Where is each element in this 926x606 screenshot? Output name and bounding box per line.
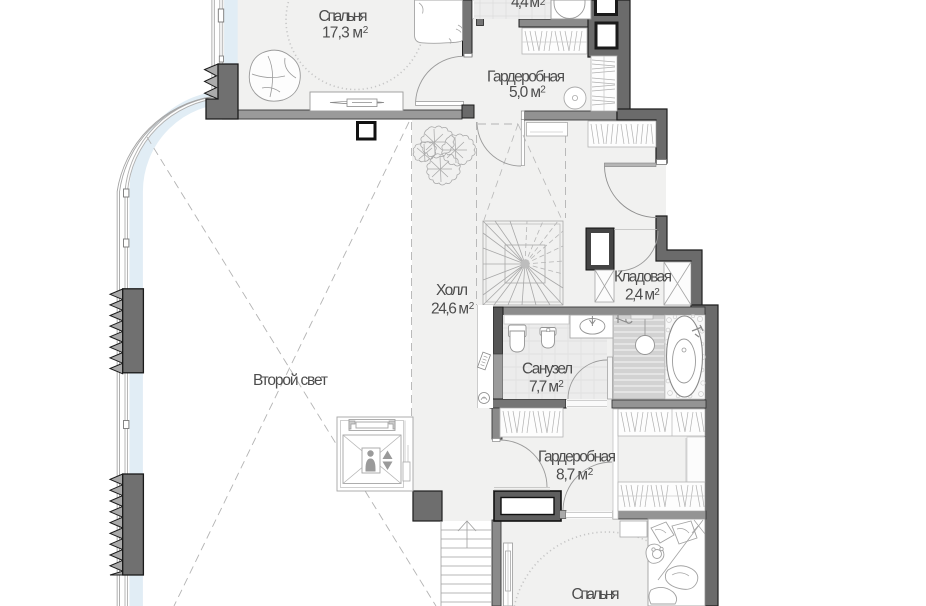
svg-text:2: 2 xyxy=(469,301,475,312)
svg-text:5,0 м: 5,0 м xyxy=(509,84,541,101)
svg-text:Санузел: Санузел xyxy=(522,361,573,378)
svg-text:Второй свет: Второй свет xyxy=(253,372,328,389)
svg-text:2: 2 xyxy=(588,467,594,478)
svg-text:Спальня: Спальня xyxy=(319,8,368,25)
svg-text:24,6 м: 24,6 м xyxy=(431,301,469,318)
svg-text:2: 2 xyxy=(363,25,369,36)
svg-text:2: 2 xyxy=(558,379,564,390)
svg-text:2: 2 xyxy=(540,0,546,8)
svg-text:Холл: Холл xyxy=(436,282,468,299)
svg-text:Гардеробная: Гардеробная xyxy=(487,69,565,86)
svg-text:4,4 м: 4,4 м xyxy=(511,0,540,11)
svg-text:2,4 м: 2,4 м xyxy=(625,287,655,304)
svg-text:7,7 м: 7,7 м xyxy=(529,379,559,396)
svg-text:8,7 м: 8,7 м xyxy=(556,467,588,484)
svg-text:Спальня: Спальня xyxy=(572,586,620,603)
svg-text:17,3 м: 17,3 м xyxy=(322,25,363,42)
svg-text:Гардеробная: Гардеробная xyxy=(538,449,616,466)
svg-text:2: 2 xyxy=(654,287,660,298)
svg-text:Кладовая: Кладовая xyxy=(614,269,672,286)
svg-text:2: 2 xyxy=(540,85,546,96)
